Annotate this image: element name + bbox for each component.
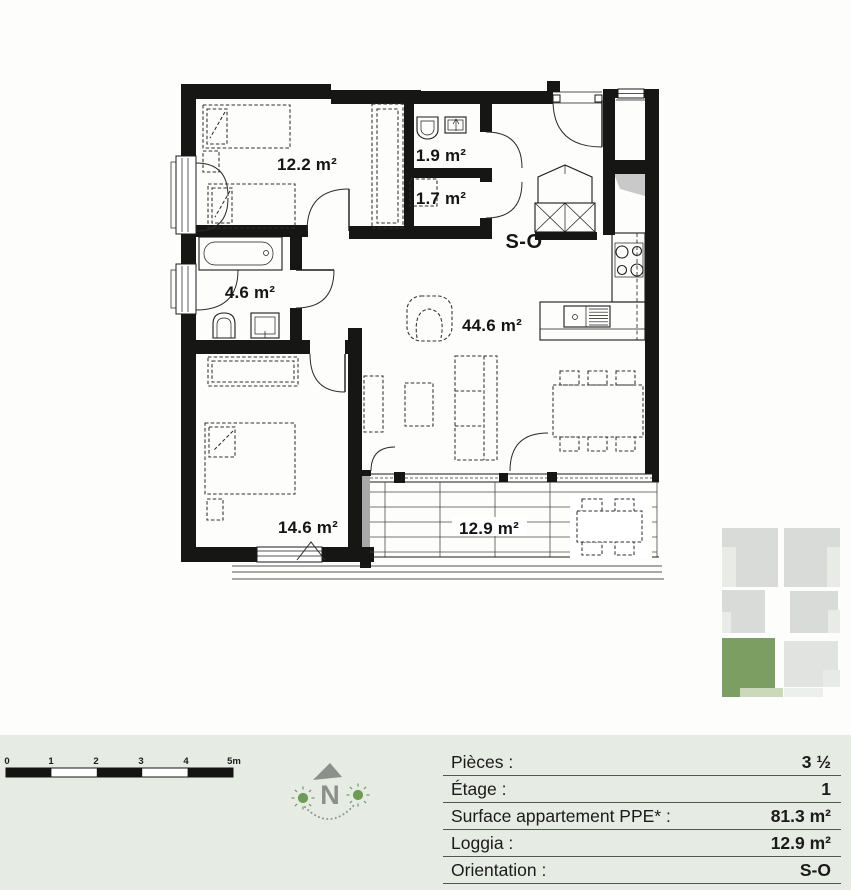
highlighted-unit	[722, 638, 783, 697]
hall-wardrobe	[364, 376, 383, 432]
table-row-loggia: Loggia : 12.9 m²	[443, 830, 841, 857]
highlighted-unit-loggia	[740, 688, 783, 697]
coat-closet	[538, 165, 592, 203]
north-label: N	[320, 780, 340, 810]
sunrise-icon	[292, 787, 315, 810]
apartment-info-table: Pièces : 3 ½ Étage : 1 Surface apparteme…	[443, 749, 841, 884]
furniture-bedroom-2	[205, 357, 298, 520]
bedroom-1-label: 12.2 m²	[277, 155, 337, 174]
scale-tick-4: 4	[183, 756, 189, 767]
row-value: 12.9 m²	[771, 830, 841, 856]
table-row-surface: Surface appartement PPE* : 81.3 m²	[443, 803, 841, 830]
bathroom-label: 4.6 m²	[225, 283, 275, 302]
compass: N	[283, 753, 393, 848]
door-reduit	[486, 182, 522, 218]
door-loggia-left	[371, 447, 395, 471]
scale-bar: 0 1 2 3 4 5m	[0, 752, 260, 788]
row-value: S-O	[800, 857, 841, 883]
door-bathroom	[296, 270, 334, 308]
loggia-side-wall	[361, 474, 370, 558]
row-label: Étage :	[443, 776, 506, 802]
living-label: 44.6 m²	[462, 316, 522, 335]
row-label: Surface appartement PPE* :	[443, 803, 671, 829]
technical-shaft	[535, 203, 595, 232]
door-wc	[486, 132, 522, 168]
bathroom-sink	[251, 313, 279, 338]
row-label: Loggia :	[443, 830, 513, 856]
window-bedroom-1	[171, 156, 228, 234]
window-bedroom-2	[257, 542, 325, 562]
table-row-pieces: Pièces : 3 ½	[443, 749, 841, 776]
footer: 0 1 2 3 4 5m N	[0, 735, 851, 890]
armchair	[407, 296, 452, 341]
table-row-orientation: Orientation : S-O	[443, 857, 841, 884]
row-value: 3 ½	[802, 749, 841, 775]
reduit-label: 1.7 m²	[416, 189, 466, 208]
kitchen-sink	[564, 306, 610, 327]
scale-tick-3: 3	[138, 756, 143, 767]
door-bedroom-2	[310, 354, 345, 392]
toilet	[213, 313, 235, 338]
row-value: 1	[821, 776, 841, 802]
row-label: Orientation :	[443, 857, 546, 883]
door-loggia-right	[510, 433, 548, 471]
scale-tick-1: 1	[48, 756, 54, 767]
north-arrow-icon	[313, 763, 342, 780]
loggia-table-and-chairs	[570, 494, 652, 558]
scale-tick-0: 0	[4, 756, 9, 767]
wc-label: 1.9 m²	[416, 146, 466, 165]
bedroom-2-label: 14.6 m²	[278, 518, 338, 537]
window-shaft	[616, 89, 645, 100]
scale-tick-5: 5m	[227, 756, 241, 767]
loggia-label: 12.9 m²	[459, 519, 519, 538]
floorplan-page: 12.2 m² 1.9 m² 1.7 m² 4.6 m² 44.6 m² 14.…	[0, 0, 851, 890]
table-row-etage: Étage : 1	[443, 776, 841, 803]
orientation-marker: S-O	[505, 231, 542, 253]
scale-tick-2: 2	[93, 756, 98, 767]
sunset-icon	[347, 784, 370, 807]
coffee-table	[405, 383, 433, 426]
row-label: Pièces :	[443, 749, 513, 775]
bathtub	[199, 237, 282, 270]
entrance-door	[553, 92, 602, 147]
kitchen-fixtures	[540, 233, 645, 340]
building-unit-locator	[715, 518, 850, 703]
interior-walls	[196, 99, 597, 558]
row-value: 81.3 m²	[771, 803, 841, 829]
sofa	[455, 356, 497, 460]
door-bedroom-1	[307, 189, 349, 231]
dining-table-and-chairs	[553, 371, 643, 451]
